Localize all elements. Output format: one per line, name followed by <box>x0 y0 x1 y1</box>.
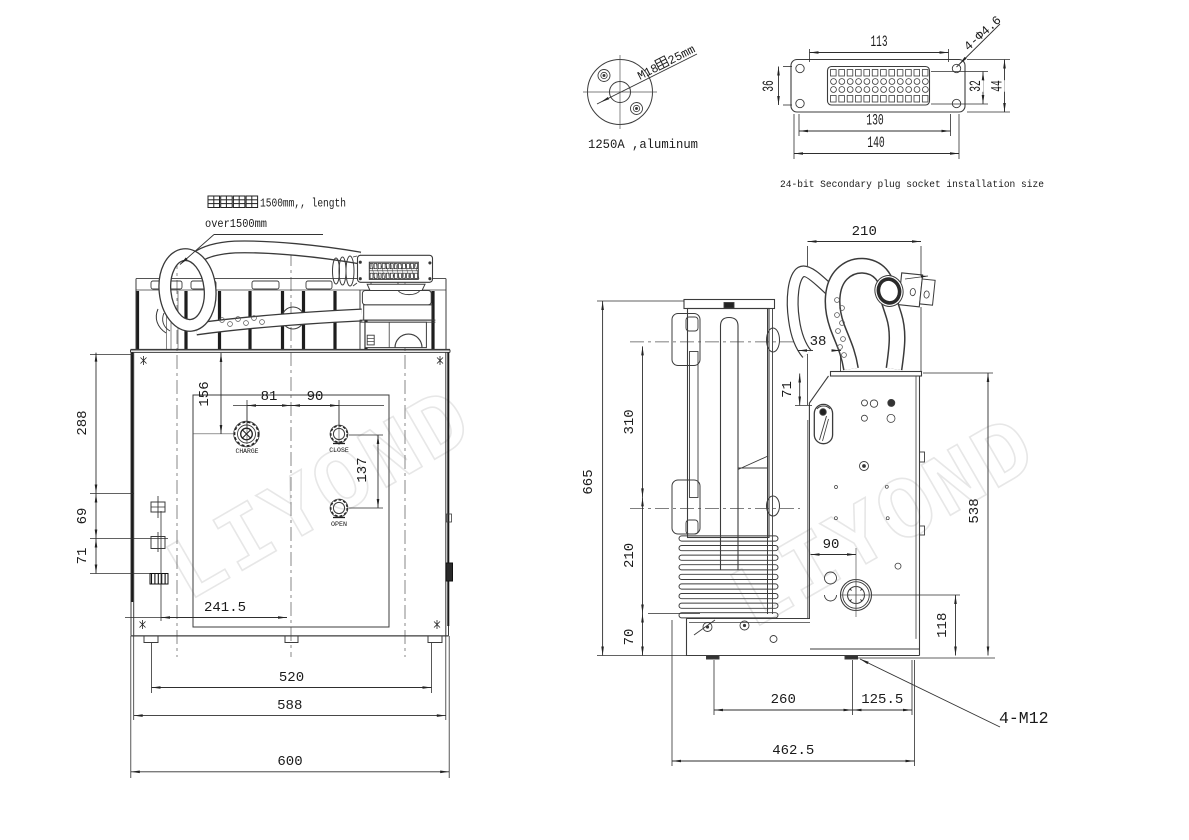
svg-text:210: 210 <box>852 224 877 240</box>
svg-text:588: 588 <box>277 698 302 714</box>
svg-text:CHARGE: CHARGE <box>236 448 259 455</box>
svg-text:44: 44 <box>989 80 1007 92</box>
svg-text:81: 81 <box>261 389 278 405</box>
svg-text:538: 538 <box>967 498 983 523</box>
svg-text:over1500mm: over1500mm <box>205 218 267 231</box>
svg-text:130: 130 <box>866 112 884 130</box>
svg-text:241.5: 241.5 <box>204 600 246 616</box>
svg-text:90: 90 <box>307 389 324 405</box>
svg-text:137: 137 <box>355 457 371 482</box>
svg-text:70: 70 <box>622 629 638 646</box>
svg-text:OPEN: OPEN <box>331 521 347 528</box>
svg-text:24-bit Secondary plug socket i: 24-bit Secondary plug socket installatio… <box>780 179 1044 191</box>
svg-text:38: 38 <box>810 334 827 350</box>
svg-text:310: 310 <box>622 409 638 434</box>
svg-text:1250A ,aluminum: 1250A ,aluminum <box>588 137 698 152</box>
svg-text:462.5: 462.5 <box>772 743 814 759</box>
svg-text:71: 71 <box>780 381 796 398</box>
svg-text:36: 36 <box>760 80 778 92</box>
svg-text:90: 90 <box>823 537 840 553</box>
svg-text:125.5: 125.5 <box>861 692 903 708</box>
svg-text:600: 600 <box>277 754 302 770</box>
svg-text:71: 71 <box>75 548 91 565</box>
svg-text:156: 156 <box>197 381 213 406</box>
svg-text:288: 288 <box>75 410 91 435</box>
svg-text:118: 118 <box>935 613 951 638</box>
svg-text:4-M12: 4-M12 <box>999 709 1049 728</box>
svg-text:69: 69 <box>75 508 91 525</box>
svg-text:665: 665 <box>581 469 597 494</box>
svg-text:140: 140 <box>867 134 885 152</box>
svg-text:CLOSE: CLOSE <box>329 447 349 454</box>
svg-text:32: 32 <box>967 80 985 92</box>
svg-text:210: 210 <box>622 543 638 568</box>
svg-text:113: 113 <box>871 33 888 51</box>
svg-text:260: 260 <box>771 692 796 708</box>
svg-text:520: 520 <box>279 670 304 686</box>
svg-text:1500mm,, length: 1500mm,, length <box>260 198 346 211</box>
